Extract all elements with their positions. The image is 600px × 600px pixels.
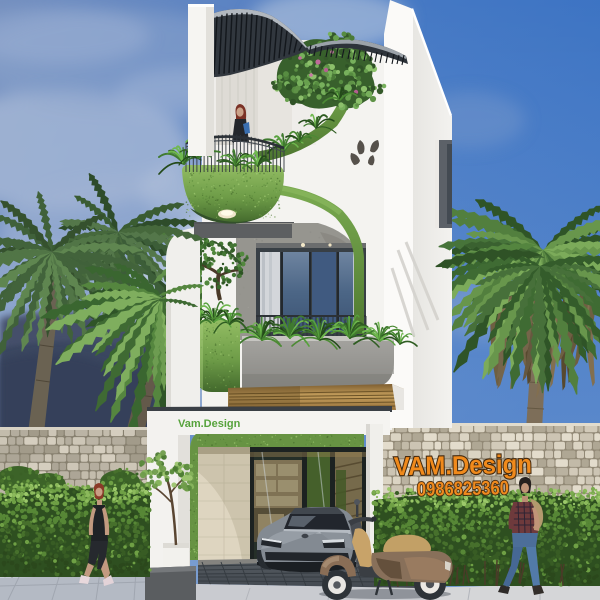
svg-text:0986825360: 0986825360 (417, 477, 509, 501)
svg-text:Vam.Design: Vam.Design (178, 418, 241, 430)
svg-text:VAM.Design: VAM.Design (394, 449, 533, 481)
